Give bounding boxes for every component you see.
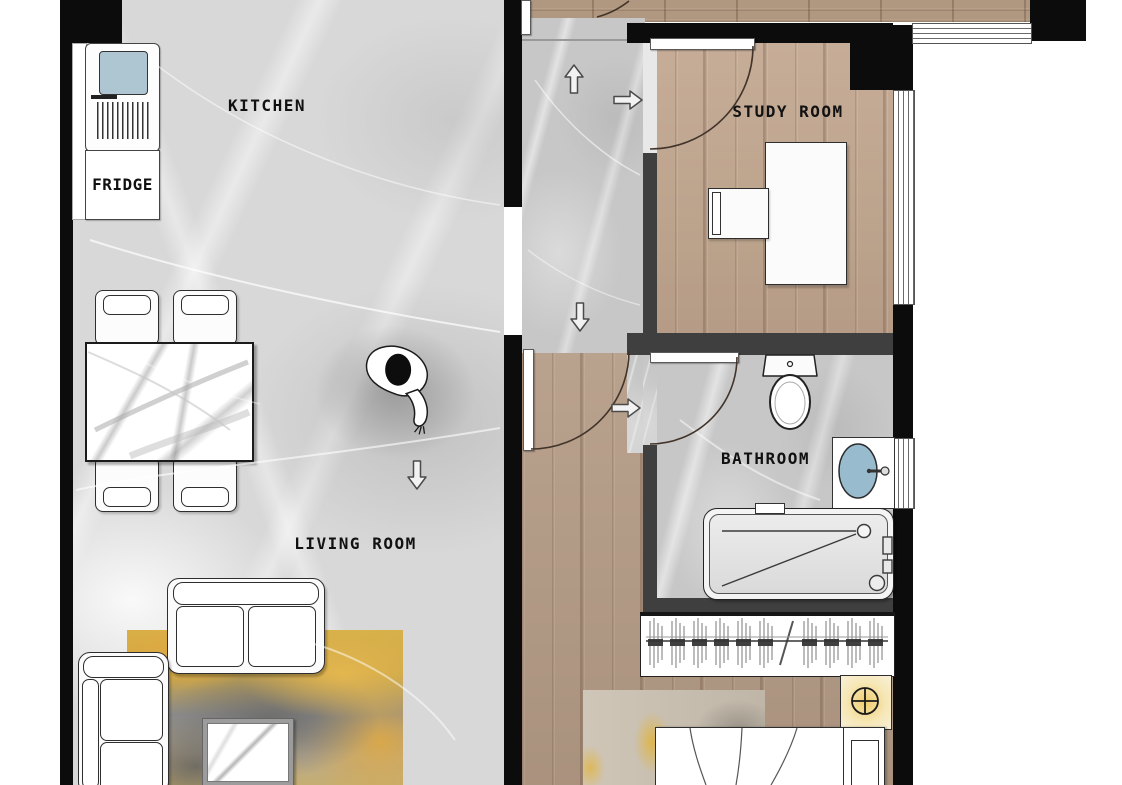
- living-room-label: LIVING ROOM: [288, 534, 423, 553]
- flow-arrow-down-living: [408, 461, 426, 489]
- bathroom-label: BATHROOM: [708, 449, 823, 468]
- flow-arrows: [408, 65, 642, 489]
- flow-arrow-right: [614, 91, 642, 109]
- plan-symbol-overlay: [0, 0, 1122, 785]
- study-door-arc: [650, 46, 753, 149]
- bedroom-door-arc: [531, 351, 629, 449]
- bed-fold-lines: [690, 728, 797, 785]
- toilet-icon: [763, 355, 817, 429]
- flow-arrow-down: [571, 303, 589, 331]
- flow-arrow-right-bath: [612, 399, 640, 417]
- dining-table-veins: [88, 352, 249, 456]
- entry-door-arc: [597, 1, 629, 17]
- wash-basin-icon: [839, 444, 889, 498]
- flow-arrow-up: [565, 65, 583, 93]
- person-top-view-icon: [352, 340, 444, 436]
- wardrobe-hangers-icon: [646, 618, 888, 668]
- apartment-floor-plan: FRIDGE: [0, 0, 1122, 785]
- ceiling-lamp-icon: [852, 688, 878, 714]
- door-swing-arcs: [531, 1, 753, 449]
- kitchen-label: KITCHEN: [207, 96, 327, 115]
- study-room-label: STUDY ROOM: [713, 102, 863, 121]
- bathtub-details: [722, 525, 892, 591]
